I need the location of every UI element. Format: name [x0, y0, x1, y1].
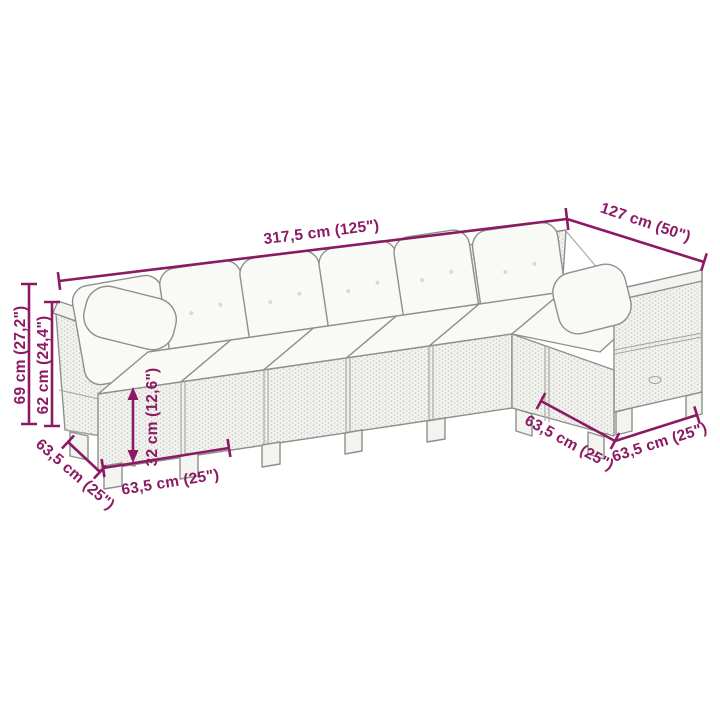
leg	[427, 418, 445, 442]
dim-label-right-depth: 127 cm (50")	[598, 200, 693, 246]
dimension-total-height: 69 cm (27,2")	[12, 284, 37, 424]
dim-label-arm-height: 62 cm (24,4")	[35, 316, 52, 415]
dimension-right-depth: 127 cm (50")	[567, 200, 707, 271]
dim-label-total-height: 69 cm (27,2")	[12, 306, 29, 405]
leg	[686, 392, 702, 418]
product-diagram-canvas: 317,5 cm (125") 127 cm (50") 69 cm (27,2…	[0, 0, 720, 720]
leg	[616, 408, 632, 435]
leg	[262, 442, 280, 467]
sofa-dimension-diagram: 317,5 cm (125") 127 cm (50") 69 cm (27,2…	[0, 0, 720, 720]
leg	[345, 430, 362, 454]
dim-label-seat-height: 32 cm (12,6")	[144, 368, 161, 467]
dim-label-seat-width: 63,5 cm (25")	[120, 466, 220, 498]
